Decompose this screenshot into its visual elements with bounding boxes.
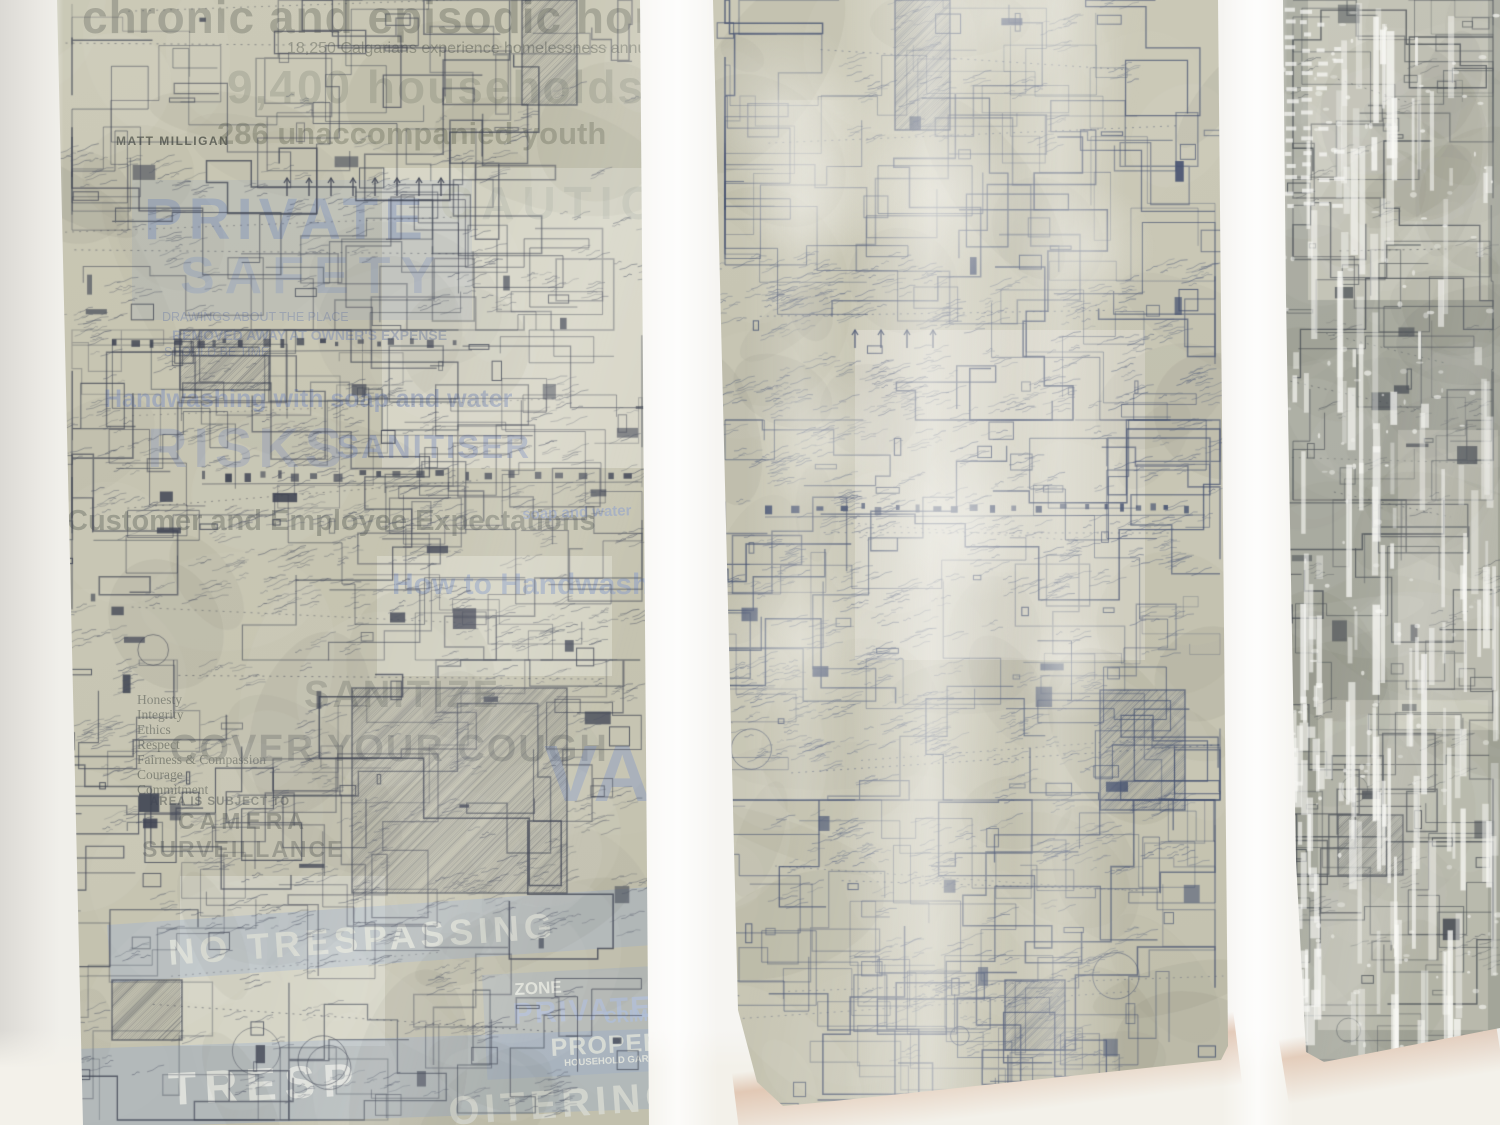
artwork-panel-middle: [705, 0, 1235, 1125]
wall-gap-left: [638, 0, 718, 1125]
left-panel-drawing-canvas: [52, 0, 652, 1125]
middle-panel-drawing-canvas: [705, 0, 1235, 1125]
artwork-panel-left: chronic and episodic homelessness. 18,25…: [52, 0, 652, 1125]
right-panel-drawing-canvas: [1278, 0, 1500, 1125]
artwork-panel-right: [1278, 0, 1500, 1125]
wall-gap-right: [1222, 0, 1294, 1125]
gallery-photo: chronic and episodic homelessness. 18,25…: [0, 0, 1500, 1125]
